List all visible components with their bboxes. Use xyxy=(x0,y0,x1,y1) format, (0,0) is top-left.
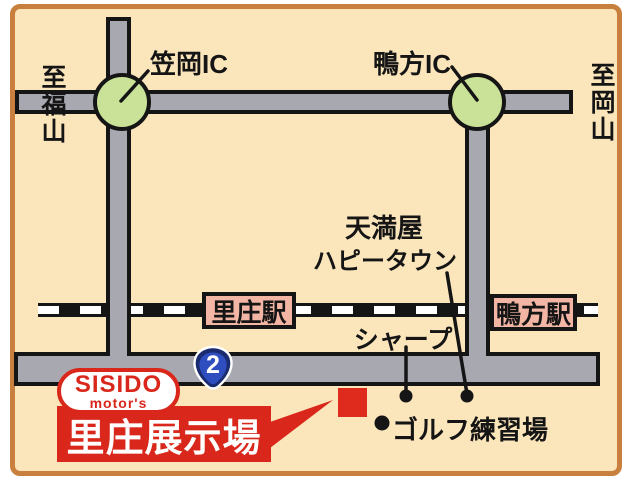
road-vertical-left xyxy=(106,17,131,362)
satosho-station-label: 里庄駅 xyxy=(211,293,286,329)
to-okayama-label: 至岡山 xyxy=(583,62,619,143)
kamogata-station-label: 鴨方駅 xyxy=(496,295,571,331)
junction-left xyxy=(110,352,127,360)
access-map: 里庄駅 鴨方駅 笠岡IC 鴨方IC 至福山 至岡山 天満屋 ハピータウン シャー… xyxy=(0,0,640,480)
route-number: 2 xyxy=(206,351,220,379)
kasaoka-ic-label: 笠岡IC xyxy=(150,44,228,81)
dealer-brand-logo: SISIDO motor's xyxy=(57,368,180,414)
junction-right xyxy=(469,352,486,360)
sharp-label: シャープ xyxy=(353,320,453,356)
dealer-site-banner: 里庄展示場 xyxy=(57,406,271,462)
brand-name-bottom: motor's xyxy=(90,396,148,410)
tenmaya-label-line1: 天満屋 xyxy=(299,208,469,245)
satosho-station-box: 里庄駅 xyxy=(202,292,296,329)
kamogata-ic-circle xyxy=(448,73,506,131)
kasaoka-ic-circle xyxy=(93,73,151,131)
to-fukuyama-label: 至福山 xyxy=(34,64,70,145)
brand-name-top: SISIDO xyxy=(75,373,162,397)
dealer-site-label: 里庄展示場 xyxy=(66,407,261,462)
kamogata-station-box: 鴨方駅 xyxy=(490,294,577,331)
golf-range-label: ゴルフ練習場 xyxy=(392,410,548,447)
kamogata-ic-label: 鴨方IC xyxy=(373,44,451,81)
tenmaya-label-line2: ハピータウン xyxy=(287,241,483,276)
dealer-location-marker xyxy=(338,388,367,417)
route-2-badge: 2 xyxy=(190,345,236,391)
